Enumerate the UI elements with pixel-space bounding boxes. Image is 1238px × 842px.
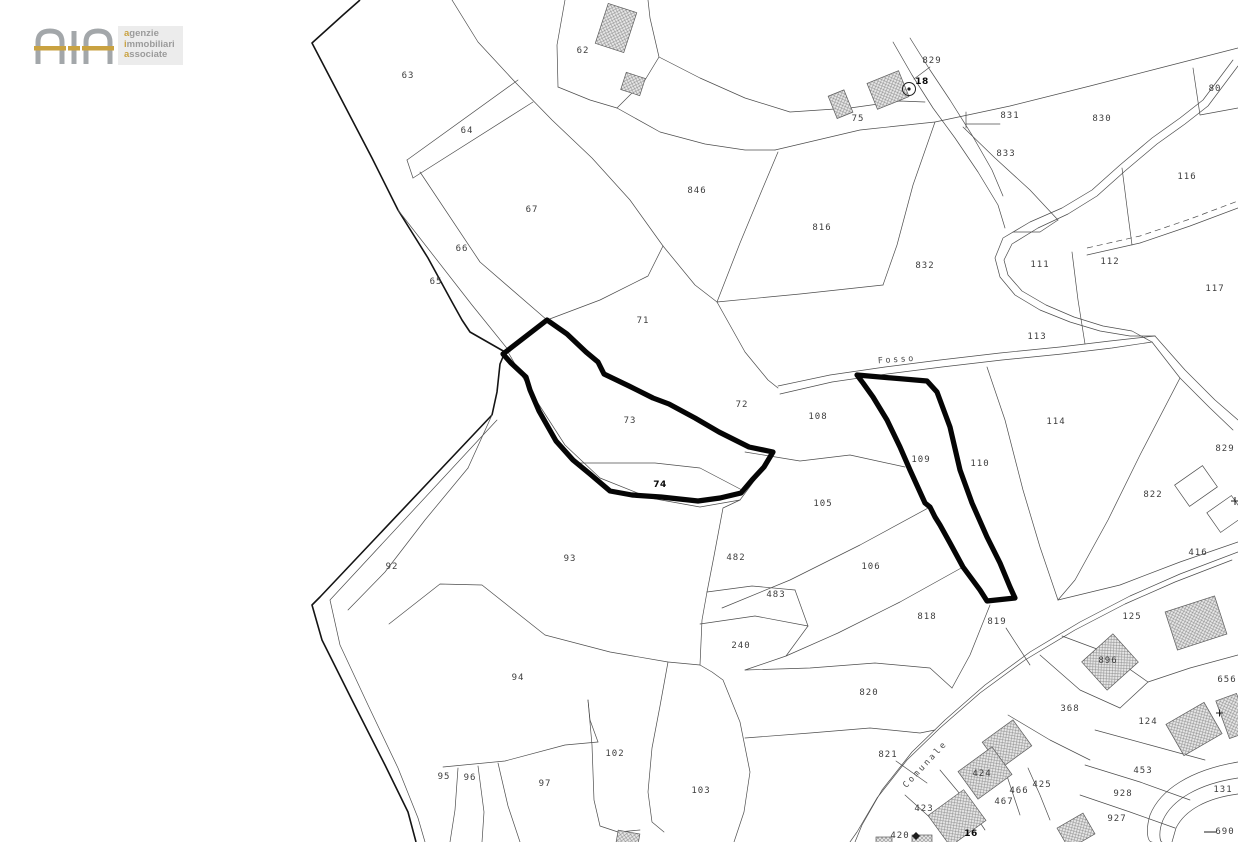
map-outer-border	[312, 0, 505, 842]
logo-gold-bar	[82, 46, 114, 51]
parcel-label-109: 109	[911, 455, 930, 465]
parcel-label-112: 112	[1100, 257, 1119, 267]
parcel-label-71: 71	[637, 316, 650, 326]
parcel-label-117: 117	[1205, 284, 1224, 294]
parcel-label-111: 111	[1030, 260, 1049, 270]
road-comunale	[855, 552, 1238, 842]
parcel-label-896: 896	[1098, 656, 1117, 666]
parcel-label-106: 106	[861, 562, 880, 572]
parcel-label-110: 110	[970, 459, 989, 469]
logo-word: associate	[124, 50, 175, 61]
parcel-label-818: 818	[917, 612, 936, 622]
parcel-label-423: 423	[914, 804, 933, 814]
parcel-label-108: 108	[808, 412, 827, 422]
parcel-label-72: 72	[736, 400, 749, 410]
parcel-label-453: 453	[1133, 766, 1152, 776]
highlight-parcel-73-74	[503, 320, 773, 501]
parcel-label-831: 831	[1000, 111, 1019, 121]
parcel-label-927: 927	[1107, 814, 1126, 824]
parcel-label-97: 97	[539, 779, 552, 789]
parcel-label-833: 833	[996, 149, 1015, 159]
parcel-label-690: 690	[1215, 827, 1234, 837]
parcel-boundaries	[348, 0, 1238, 842]
parcel-label-102: 102	[605, 749, 624, 759]
parcel-label-829: 829	[922, 56, 941, 66]
parcel-label-830: 830	[1092, 114, 1111, 124]
parcel-label-928: 928	[1113, 789, 1132, 799]
parcel-label-66: 66	[456, 244, 469, 254]
highlight-parcel-109	[857, 375, 1015, 601]
parcel-label-846: 846	[687, 186, 706, 196]
parcel-label-67: 67	[526, 205, 539, 215]
parcel-label-75: 75	[852, 114, 865, 124]
parcel-label-18: 18	[915, 77, 929, 87]
road-label-Fosso: Fosso	[878, 354, 917, 367]
cadastral-map: 6263646766658468168327582918831830808331…	[0, 0, 1238, 842]
parcel-label-483: 483	[766, 590, 785, 600]
parcel-label-16: 16	[964, 829, 978, 839]
parcel-label-63: 63	[402, 71, 415, 81]
parcel-label-829: 829	[1215, 444, 1234, 454]
building	[1057, 813, 1095, 842]
building	[828, 90, 853, 119]
parcel-label-816: 816	[812, 223, 831, 233]
parcel-label-425: 425	[1032, 780, 1051, 790]
parcel-label-822: 822	[1143, 490, 1162, 500]
parcel-label-424: 424	[972, 769, 991, 779]
highlighted-parcels	[503, 320, 1015, 601]
parcel-label-656: 656	[1217, 675, 1236, 685]
parcel-label-467: 467	[994, 797, 1013, 807]
parcel-label-832: 832	[915, 261, 934, 271]
logo-text: agenzie immobiliari associate	[118, 26, 183, 65]
parcel-label-131: 131	[1213, 785, 1232, 795]
parcel-label-466: 466	[1009, 786, 1028, 796]
parcel-label-64: 64	[461, 126, 474, 136]
parcel-label-124: 124	[1138, 717, 1157, 727]
parcel-labels-layer: 6263646766658468168327582918831830808331…	[386, 46, 1237, 841]
survey-point-dot	[907, 87, 910, 90]
parcel-label-95: 95	[438, 772, 451, 782]
parcel-label-65: 65	[430, 277, 443, 287]
parcel-label-62: 62	[577, 46, 590, 56]
parcel-label-819: 819	[987, 617, 1006, 627]
building	[595, 3, 637, 52]
parcel-label-420: 420	[890, 831, 909, 841]
parcel-label-93: 93	[564, 554, 577, 564]
building-outline	[1175, 466, 1218, 507]
parcel-label-73: 73	[624, 416, 637, 426]
parcel-label-116: 116	[1177, 172, 1196, 182]
road-southeast	[1155, 336, 1238, 420]
parcel-label-114: 114	[1046, 417, 1065, 427]
parcel-label-92: 92	[386, 562, 399, 572]
parcel-label-105: 105	[813, 499, 832, 509]
map-svg: 6263646766658468168327582918831830808331…	[0, 0, 1238, 842]
agency-logo: agenzie immobiliari associate	[30, 22, 200, 70]
parcel-label-74: 74	[653, 480, 667, 490]
parcel-label-113: 113	[1027, 332, 1046, 342]
road-label-Comunale: Comunale	[901, 739, 950, 790]
logo-gold-bar	[68, 46, 80, 51]
parcel-label-820: 820	[859, 688, 878, 698]
building	[1165, 596, 1227, 650]
parcel-label-368: 368	[1060, 704, 1079, 714]
parcel-label-482: 482	[726, 553, 745, 563]
parcel-label-103: 103	[691, 786, 710, 796]
parcel-label-96: 96	[464, 773, 477, 783]
parcel-label-416: 416	[1188, 548, 1207, 558]
fosso-stream	[778, 336, 1155, 386]
parcel-label-125: 125	[1122, 612, 1141, 622]
logo-gold-bar	[34, 46, 66, 51]
building	[1166, 702, 1222, 755]
logo-word: agenzie	[124, 29, 175, 40]
building	[621, 72, 646, 95]
parcel-label-80: 80	[1209, 84, 1222, 94]
parcel-label-94: 94	[512, 673, 525, 683]
parcel-label-821: 821	[878, 750, 897, 760]
parcel-label-240: 240	[731, 641, 750, 651]
road-upper-right	[995, 60, 1233, 336]
building	[616, 830, 640, 842]
